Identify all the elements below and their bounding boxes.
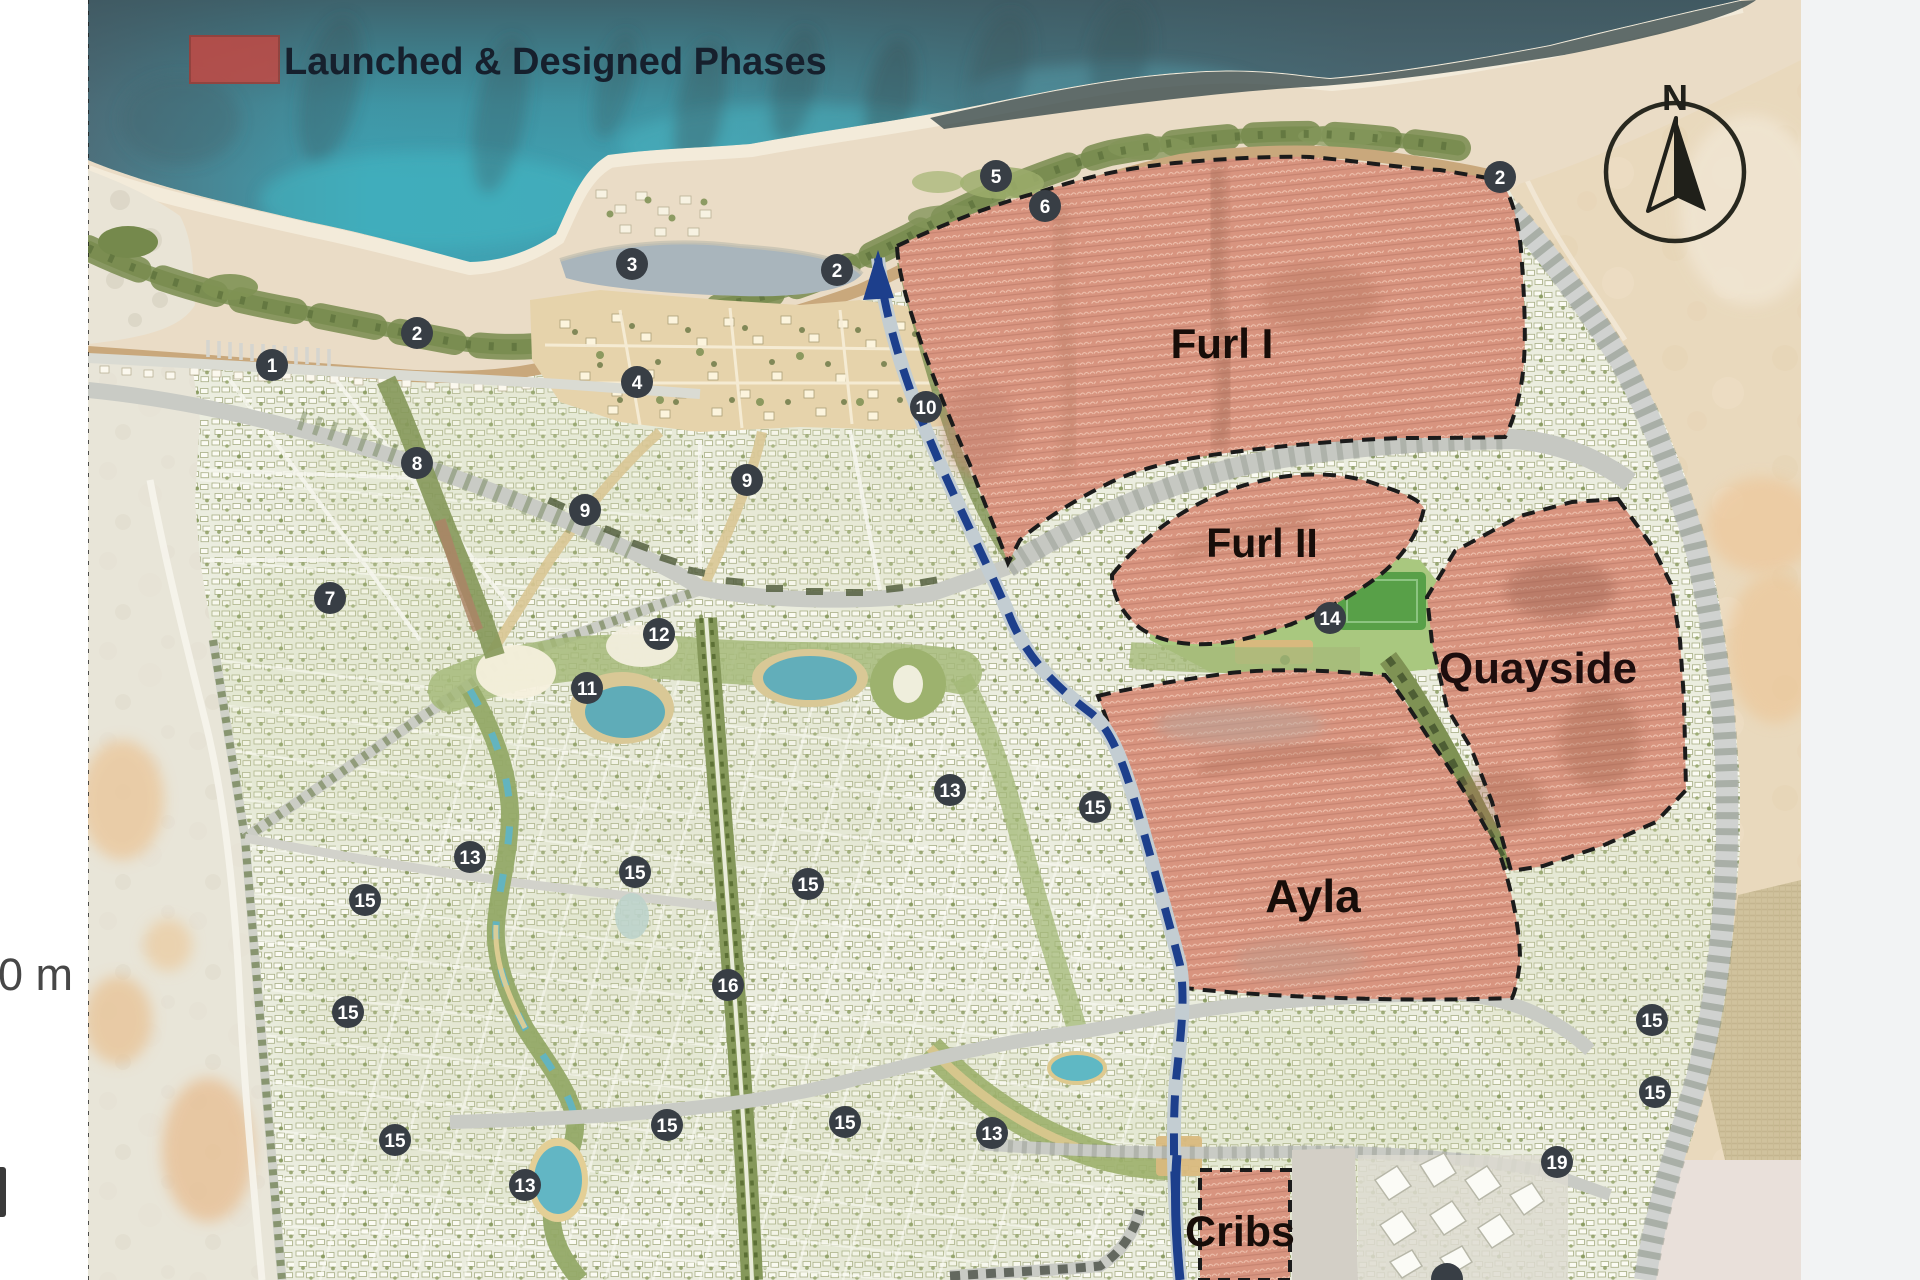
svg-text:13: 13 [514, 1176, 535, 1197]
svg-text:15: 15 [834, 1113, 856, 1134]
svg-text:12: 12 [648, 625, 669, 646]
svg-text:15: 15 [1644, 1083, 1666, 1104]
svg-text:Quayside: Quayside [1439, 644, 1637, 693]
svg-text:N: N [1662, 77, 1688, 118]
svg-text:14: 14 [1319, 609, 1341, 630]
svg-text:2: 2 [832, 261, 843, 282]
svg-text:Furl I: Furl I [1171, 320, 1274, 367]
svg-text:9: 9 [742, 471, 753, 492]
svg-text:13: 13 [459, 848, 480, 869]
svg-text:0 m: 0 m [0, 949, 73, 1000]
svg-text:9: 9 [580, 501, 591, 522]
svg-text:5: 5 [991, 167, 1002, 188]
svg-text:16: 16 [717, 976, 738, 997]
svg-text:13: 13 [939, 781, 960, 802]
svg-text:3: 3 [627, 255, 638, 276]
svg-text:Cribs: Cribs [1185, 1208, 1295, 1256]
svg-text:2: 2 [412, 324, 423, 345]
svg-text:15: 15 [797, 875, 819, 896]
svg-text:8: 8 [412, 454, 423, 475]
svg-text:1: 1 [267, 356, 278, 377]
svg-text:19: 19 [1546, 1153, 1567, 1174]
svg-text:11: 11 [577, 679, 598, 700]
svg-text:4: 4 [632, 373, 643, 394]
svg-text:Ayla: Ayla [1265, 870, 1361, 922]
svg-text:15: 15 [624, 863, 646, 884]
svg-text:15: 15 [354, 891, 376, 912]
svg-text:2: 2 [1495, 168, 1506, 189]
svg-text:6: 6 [1040, 197, 1051, 218]
svg-text:10: 10 [915, 398, 936, 419]
svg-text:7: 7 [325, 589, 336, 610]
svg-text:13: 13 [981, 1124, 1002, 1145]
svg-text:15: 15 [384, 1131, 406, 1152]
svg-text:15: 15 [337, 1003, 359, 1024]
svg-text:Furl II: Furl II [1206, 520, 1318, 566]
svg-text:15: 15 [1641, 1011, 1663, 1032]
svg-text:Launched & Designed Phases: Launched & Designed Phases [284, 41, 827, 83]
svg-text:15: 15 [1084, 798, 1106, 819]
svg-text:15: 15 [656, 1116, 678, 1137]
